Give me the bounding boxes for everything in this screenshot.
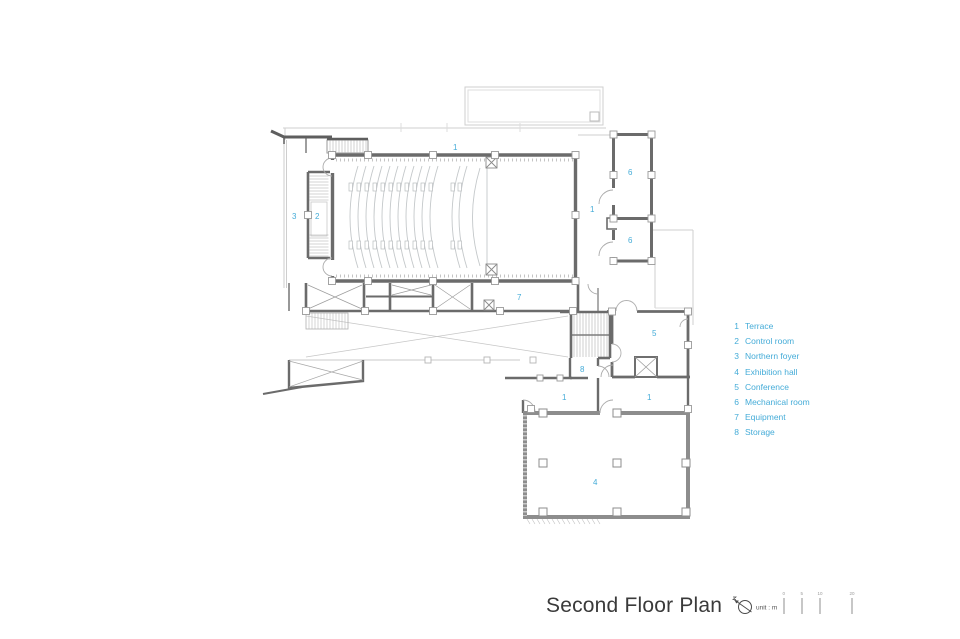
page-title: Second Floor Plan	[546, 594, 722, 618]
atrium-void	[289, 316, 568, 360]
elevator-shaft	[635, 357, 657, 377]
central-stair-core	[560, 312, 610, 358]
legend-item-northern-foyer: 3Northern foyer	[731, 349, 810, 364]
exhibition-hall-columns	[539, 409, 690, 516]
legend-item-control-room: 2Control room	[731, 334, 810, 349]
legend-item-terrace: 1Terrace	[731, 319, 810, 334]
mechanical-room-doors	[599, 190, 613, 256]
atrium-stair	[306, 313, 348, 329]
legend-label: Terrace	[745, 321, 773, 331]
auditorium-seating-rows	[350, 162, 487, 272]
legend-item-mechanical-room: 6Mechanical room	[731, 395, 810, 410]
southwest-ramp	[263, 360, 363, 394]
exhibition-hall-walls	[523, 413, 690, 517]
equipment-room-shaft	[484, 300, 494, 310]
south-terrace-walls	[523, 365, 688, 413]
room-label-equipment: 7	[517, 293, 522, 302]
room-label-mechanical-lower: 6	[628, 236, 633, 245]
stage-columns	[486, 157, 497, 275]
floor-plan-drawing: 1 1 2 3 7 6 6 5 8 1 1 4	[0, 0, 960, 639]
legend-label: Control room	[745, 336, 794, 346]
scale-tick-3: 20	[850, 591, 856, 596]
title-bar: Second Floor Plan unit : m 0 5 10 20	[546, 588, 873, 624]
room-label-control-room: 2	[315, 212, 320, 221]
room-label-terrace-north: 1	[453, 143, 458, 152]
legend-num: 4	[731, 365, 739, 380]
scale-bar	[784, 598, 852, 614]
legend-label: Exhibition hall	[745, 367, 797, 377]
room-label-northern-foyer: 3	[292, 212, 297, 221]
scale-tick-0: 0	[783, 591, 786, 596]
legend-num: 1	[731, 319, 739, 334]
room-label-exhibition-hall: 4	[593, 478, 598, 487]
floor-plan-page: 1 1 2 3 7 6 6 5 8 1 1 4 1Terrace 2Contro…	[0, 0, 960, 639]
northwest-stair	[327, 139, 368, 153]
scale-tick-2: 10	[818, 591, 824, 596]
room-label-storage: 8	[580, 365, 585, 374]
legend-item-exhibition-hall: 4Exhibition hall	[731, 365, 810, 380]
legend-label: Equipment	[745, 412, 786, 422]
room-label-terrace-east: 1	[590, 205, 595, 214]
exhibition-hall-door	[600, 400, 613, 413]
room-label-terrace-south-east: 1	[647, 393, 652, 402]
legend-label: Storage	[745, 427, 775, 437]
legend-num: 7	[731, 410, 739, 425]
legend-label: Mechanical room	[745, 397, 810, 407]
legend-num: 3	[731, 349, 739, 364]
scale-tick-1: 5	[801, 591, 804, 596]
room-label-mechanical-upper: 6	[628, 168, 633, 177]
room-label-terrace-south-west: 1	[562, 393, 567, 402]
conference-doors	[612, 301, 688, 363]
legend-label: Northern foyer	[745, 351, 799, 361]
auditorium-walls	[331, 155, 577, 281]
unit-label: unit : m	[756, 605, 777, 612]
legend-item-equipment: 7Equipment	[731, 410, 810, 425]
legend-num: 5	[731, 380, 739, 395]
east-corridor-walls	[588, 284, 598, 312]
legend-num: 6	[731, 395, 739, 410]
legend-num: 8	[731, 425, 739, 440]
foyer-glass-wall	[284, 140, 287, 288]
entry-wall-northwest	[271, 131, 332, 153]
exhibition-hall-south-hatch	[527, 519, 600, 524]
legend-label: Conference	[745, 382, 789, 392]
north-arrow-icon	[733, 597, 752, 614]
room-label-conference: 5	[652, 329, 657, 338]
scale-tick-labels: 0 5 10 20	[783, 591, 856, 596]
legend-num: 2	[731, 334, 739, 349]
legend-item-conference: 5Conference	[731, 380, 810, 395]
legend: 1Terrace 2Control room 3Northern foyer 4…	[731, 319, 810, 441]
roof-skylight-outline	[283, 87, 613, 140]
title-extras: unit : m 0 5 10 20	[728, 588, 873, 624]
legend-item-storage: 8Storage	[731, 425, 810, 440]
